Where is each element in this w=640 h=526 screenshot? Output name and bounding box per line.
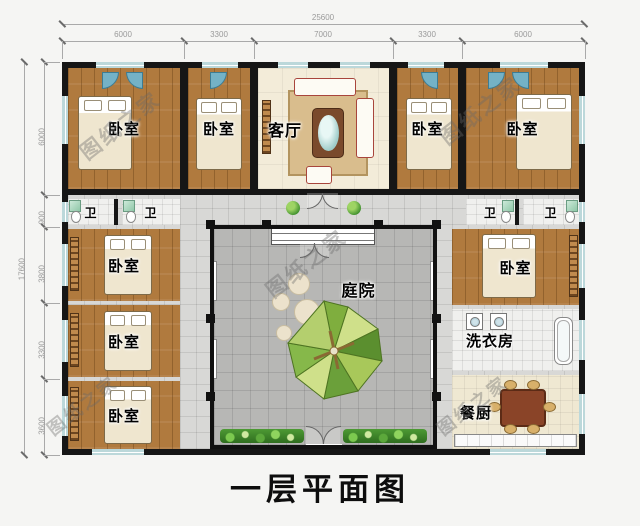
room-living: 客厅	[258, 68, 389, 189]
column	[432, 314, 441, 323]
window	[408, 62, 444, 68]
potted-plant	[286, 201, 300, 215]
window	[278, 62, 308, 68]
stepping-stone	[288, 273, 310, 295]
room-bedroom: 卧室	[68, 229, 180, 301]
courtyard-window	[430, 339, 437, 379]
dim-top-seg: 3300	[418, 30, 436, 39]
room-bedroom: 卧室	[68, 305, 180, 377]
window	[579, 244, 585, 288]
dim-left-seg: 900	[38, 211, 47, 224]
window	[579, 96, 585, 144]
room-laundry: 洗衣房	[452, 309, 579, 371]
courtyard-window	[430, 261, 437, 301]
page-title: 一层平面图	[0, 464, 640, 509]
column	[262, 220, 271, 229]
floor-plan: 卧室 卧室 客厅 卧室 卧室	[62, 62, 585, 455]
room-bedroom: 卧室	[68, 381, 180, 449]
floor-plan-sheet: 25600 6000 3300 7000 3300 6000 17600	[0, 0, 640, 526]
room-bedroom: 卧室	[188, 68, 250, 189]
window	[62, 320, 68, 362]
dim-left-seg: 6000	[38, 128, 47, 146]
column	[206, 314, 215, 323]
room-bedroom: 卧室	[452, 229, 579, 305]
potted-plant	[347, 201, 361, 215]
window	[490, 449, 546, 455]
window	[96, 62, 144, 68]
window	[579, 202, 585, 222]
column	[206, 392, 215, 401]
window	[62, 96, 68, 144]
shrub	[343, 429, 427, 443]
bathroom: 卫	[523, 199, 579, 225]
dim-left-seg: 3800	[38, 265, 47, 283]
window	[579, 320, 585, 360]
room-bedroom: 卧室	[397, 68, 458, 189]
window	[340, 62, 370, 68]
entrance-opening	[306, 444, 342, 449]
window	[62, 396, 68, 436]
column	[206, 220, 215, 229]
column	[432, 392, 441, 401]
dim-top-total: 25600	[312, 13, 334, 22]
bathroom: 卫	[68, 199, 118, 225]
dim-left-total: 17600	[18, 258, 27, 280]
window	[62, 244, 68, 286]
garden-parasol-icon	[282, 299, 386, 403]
bathroom: 卫	[122, 199, 180, 225]
bathroom: 卫	[466, 199, 519, 225]
window	[500, 62, 548, 68]
dim-top-seg: 6000	[514, 30, 532, 39]
window	[202, 62, 238, 68]
dim-left-seg: 3600	[38, 417, 47, 435]
room-bedroom: 卧室	[68, 68, 180, 189]
dim-left-seg: 3300	[38, 341, 47, 359]
window	[92, 449, 144, 455]
window	[62, 202, 68, 222]
room-bedroom: 卧室	[466, 68, 579, 189]
dim-top-seg: 3300	[210, 30, 228, 39]
courtyard-window	[210, 261, 217, 301]
courtyard-window	[210, 339, 217, 379]
column	[432, 220, 441, 229]
courtyard: 庭院	[210, 225, 437, 449]
column	[374, 220, 383, 229]
dim-top-seg: 7000	[314, 30, 332, 39]
window	[579, 394, 585, 434]
dim-top-seg: 6000	[114, 30, 132, 39]
shrub	[220, 429, 304, 443]
room-dining-kitchen: 餐厨	[452, 375, 579, 449]
